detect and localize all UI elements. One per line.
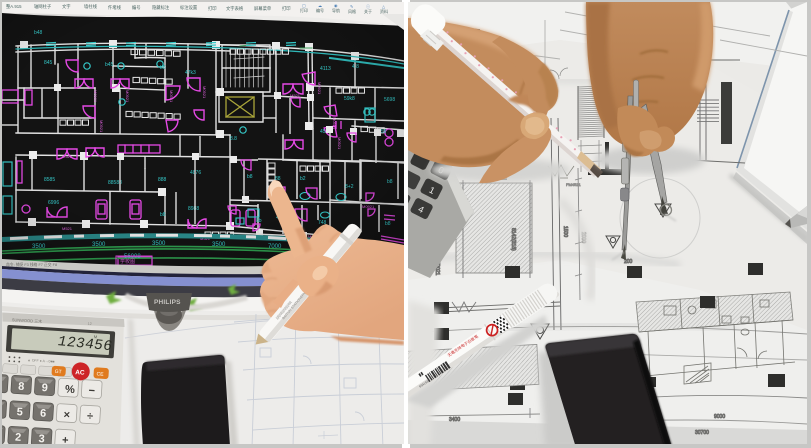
svg-text:资料: 资料: [380, 8, 388, 14]
svg-text:%: %: [65, 384, 76, 397]
svg-text:8: 8: [18, 381, 25, 393]
svg-text:1500: 1500: [562, 226, 568, 237]
svg-text:编号: 编号: [132, 4, 141, 11]
svg-text:AC: AC: [75, 369, 85, 377]
svg-text:标注设置: 标注设置: [180, 4, 198, 11]
svg-text:÷: ÷: [87, 410, 94, 422]
svg-text:文字: 文字: [62, 3, 71, 10]
svg-text:3400: 3400: [449, 417, 460, 423]
svg-text:200: 200: [624, 259, 633, 265]
svg-text:隐藏标注: 隐藏标注: [152, 4, 170, 11]
svg-text:导航: 导航: [332, 7, 340, 13]
svg-text:M: M: [94, 334, 98, 339]
svg-text:墙柱线: 墙柱线: [84, 3, 98, 10]
svg-text:−: −: [88, 385, 95, 397]
svg-text:3: 3: [38, 433, 45, 445]
svg-text:9000: 9000: [714, 414, 725, 420]
svg-text:CE: CE: [96, 371, 104, 377]
svg-text:整A.915: 整A.915: [6, 3, 22, 9]
svg-text:8142(318): 8142(318): [510, 228, 516, 251]
svg-text:30700: 30700: [695, 430, 709, 436]
svg-text:文字表格: 文字表格: [226, 5, 244, 12]
svg-text:12: 12: [88, 322, 92, 326]
svg-text:打印: 打印: [208, 5, 217, 12]
svg-text:5: 5: [16, 406, 23, 418]
svg-text:6: 6: [40, 408, 47, 420]
svg-text:2: 2: [15, 432, 22, 444]
svg-text:GT: GT: [54, 369, 61, 375]
svg-text:FM4521: FM4521: [566, 182, 581, 187]
svg-text:关于: 关于: [364, 8, 372, 14]
svg-text:编号: 编号: [316, 7, 324, 13]
svg-text:打印: 打印: [300, 7, 308, 13]
svg-text:仵堵线: 仵堵线: [108, 4, 122, 11]
svg-text:屏幕菜单: 屏幕菜单: [254, 5, 272, 12]
svg-text:9: 9: [41, 382, 48, 394]
svg-text:风格: 风格: [348, 8, 356, 14]
svg-text:轴网柱子: 轴网柱子: [34, 3, 52, 10]
svg-text:×: ×: [63, 409, 70, 421]
svg-text:PHILIPS: PHILIPS: [154, 299, 181, 306]
svg-text:命令: 捕捉 F3 栈格 F7 正交 F8: 命令: 捕捉 F3 栈格 F7 正交 F8: [6, 262, 57, 267]
svg-text:打印: 打印: [282, 5, 291, 12]
